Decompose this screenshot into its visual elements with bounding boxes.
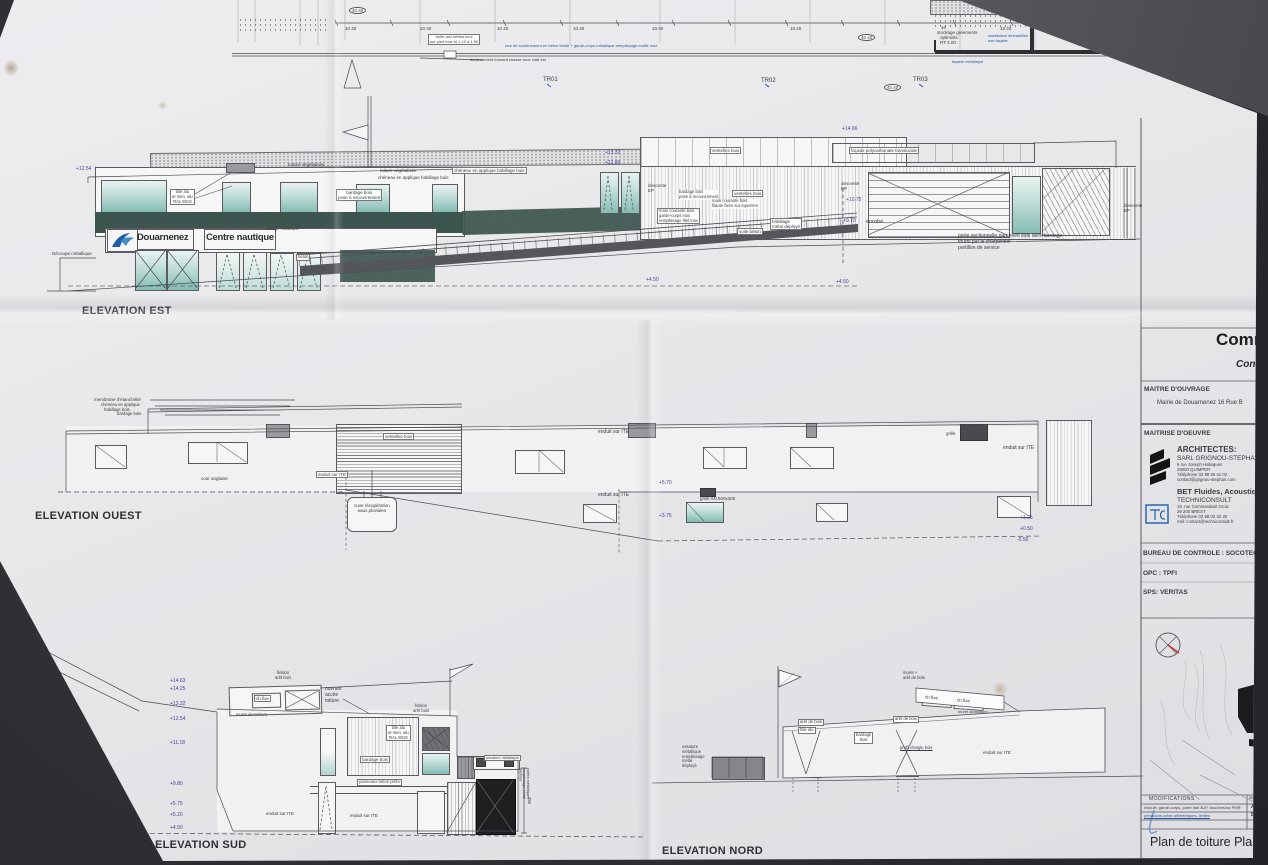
level-mark: +14.66 <box>842 127 857 132</box>
label-stockage: RT 4.00 <box>940 40 956 45</box>
maitrise-oeuvre-label: MAITRISE D'OEUVRE <box>1144 430 1211 437</box>
level-mark: +5.75 <box>170 802 183 807</box>
label-tole-alu: tôle aluet men. aluRAL 8019 <box>386 725 411 741</box>
site-building-footprint <box>1238 681 1268 733</box>
label-enduit-ite: enduit sur ITE <box>266 811 294 816</box>
label-porte-sectionnelle: porte sectionnelle parement bois idem ba… <box>958 234 1062 251</box>
window <box>422 753 450 775</box>
modification-indice: B <box>1251 813 1255 819</box>
dim-value: 10.40 <box>790 26 801 31</box>
dark-door <box>476 779 516 835</box>
photo-of-architectural-drawing: TR01 TR02 TR03 10.40 10.40 10.40 10.40 1… <box>0 0 1268 865</box>
label-enrobe: enrobé <box>866 219 883 225</box>
level-mark: +9.70 <box>843 219 856 224</box>
narrow-door <box>243 252 267 291</box>
label-muret-aret: muret +arêt de bois <box>903 671 925 681</box>
label-mur-soutenement: mur de soutènement en béton teinté + gar… <box>505 44 657 49</box>
label-aret-bois: arêt de bois <box>893 716 919 723</box>
level-mark: +1.25 <box>1020 516 1033 521</box>
label-cuve: cuve récupérationeaux pluviales <box>354 503 390 513</box>
door <box>791 730 822 778</box>
label-bardage-bois: bardage bois <box>117 412 141 417</box>
paper-stain <box>4 58 18 78</box>
level-mark: +4.50 <box>170 826 183 831</box>
level-mark: +5.70 <box>659 481 672 486</box>
window <box>703 447 747 469</box>
window <box>432 184 458 213</box>
label-enduit-ite: enduit sur ITE <box>983 750 1011 755</box>
window <box>515 450 565 474</box>
label-chassis-fixe: ch.fixe <box>254 695 271 702</box>
level-mark: -0.50 <box>1017 538 1028 543</box>
maitre-ouvrage-value: Mairie de Douarnenez 16 Rue B <box>1157 400 1243 407</box>
dim-bubble: 40.40 <box>858 34 875 41</box>
label-enduit-ite: enduit sur ITE <box>316 471 348 478</box>
window <box>101 180 167 213</box>
label-cour-anglaise: cour anglaise <box>201 476 228 481</box>
section-marker: TR03 <box>913 77 928 84</box>
label-beton: béton <box>296 254 310 261</box>
techniconsult-logo-icon <box>1146 505 1168 523</box>
level-mark: +13.32 <box>170 702 185 707</box>
glazed-door <box>135 250 167 291</box>
label-descente-ep: descenteEP <box>1124 203 1142 213</box>
label-cheneau: chéneau en applique habillage bois <box>452 167 527 174</box>
bet-label: BET Fluides, Acoustique <box>1177 488 1265 497</box>
label-grille-an: grille AN 600x300 <box>700 496 735 501</box>
elevation-est-title: ELEVATION EST <box>82 305 172 317</box>
label-enduit-ite: enduit sur ITE <box>1003 446 1034 452</box>
window-lower <box>816 503 848 522</box>
label-enduit-ite: enduit sur ITE <box>350 813 378 818</box>
label-habillage-metal: habillagemétal déployé <box>770 218 802 230</box>
label-installation: axe façade <box>988 39 1008 44</box>
label-cheneau: chéneau en applique habillage bois <box>378 175 449 180</box>
label-facade-metallique: façade métallique <box>952 60 983 65</box>
label-bardage-bois: bardage boispose à recouvrement <box>336 189 382 201</box>
sectional-door <box>868 172 1010 238</box>
narrow-window <box>318 782 336 834</box>
x-panel <box>285 690 321 711</box>
project-subtitle: Cons <box>1236 359 1261 371</box>
dim-bubble: 40.40 <box>884 84 901 91</box>
window-lower <box>583 504 617 523</box>
label-chassis-fixe: ch.fixe <box>957 698 970 704</box>
label-muret-aluminium: muret aluminium <box>236 713 267 718</box>
level-mark: +12.89 <box>605 161 620 166</box>
ouest-annex <box>1046 420 1092 506</box>
gate-panel <box>1042 168 1110 236</box>
label-ventelles: ventelles bois <box>732 190 763 197</box>
label-lettrage: lettrage métallique <box>266 227 299 232</box>
level-mark: +12.54 <box>76 167 91 172</box>
label-finition-aret: finitionarêt bois <box>413 704 429 714</box>
architectes-label: ARCHITECTES: <box>1177 445 1237 454</box>
service-door <box>1012 176 1041 234</box>
narrow-door <box>270 253 294 291</box>
wood-siding <box>822 722 900 776</box>
dim-value: 10.40 <box>497 26 508 31</box>
label-bardage-bois: bardagebois <box>854 732 873 744</box>
label-garde-corps: main courante boisgarde-corps inoxrempli… <box>657 208 700 224</box>
label-toiture-vegetalisee: toiture végétalisée <box>380 168 417 173</box>
bureau-controle: BUREAU DE CONTROLE : SOCOTEC <box>1143 550 1258 557</box>
tall-window <box>621 172 640 214</box>
maitre-ouvrage-label: MAITRE D'OUVRAGE <box>1144 386 1210 393</box>
modification-row: précisions cotes altimétriques, limites <box>1144 814 1210 819</box>
paper-fold <box>636 320 662 865</box>
section-marker: TR02 <box>761 78 776 85</box>
dim-value: 10.40 <box>652 26 663 31</box>
clerestory-dark <box>422 727 450 751</box>
architect-logo-icon <box>1150 449 1170 485</box>
paper-fold <box>0 294 1268 326</box>
drawing-sheet: TR01 TR02 TR03 10.40 10.40 10.40 10.40 1… <box>0 0 1268 865</box>
sign-city: Douarnenez <box>137 233 188 244</box>
elevation-ouest-title: ELEVATION OUEST <box>35 510 142 522</box>
grille-vent <box>960 424 988 441</box>
modification-row: édicule, garde-corps, porte hall 3UP, do… <box>1144 806 1241 811</box>
level-mark: +4.50 <box>646 278 659 283</box>
level-mark: +9.80 <box>170 782 183 787</box>
label-ventelles: ventelles bois <box>710 147 741 154</box>
window <box>95 445 127 469</box>
label-panneaux-beton: panneaux béton préfa <box>357 779 402 786</box>
level-mark: +12.54 <box>170 717 185 722</box>
label-polycarbonate: façade polycarbonate translucide <box>849 147 919 154</box>
paper-stain <box>158 101 167 110</box>
dim-value: 10.40 <box>573 26 584 31</box>
label-enduit-ite: enduit sur ITE <box>598 493 629 499</box>
modifications-header: MODIFICATIONS <box>1149 797 1195 803</box>
tall-window <box>600 172 619 214</box>
level-mark: +14.25 <box>170 687 185 692</box>
roof-vent <box>266 424 290 438</box>
dim-value: 10.40 <box>1000 26 1011 31</box>
window <box>790 447 834 469</box>
window-lower <box>686 502 724 523</box>
stair-zone <box>447 782 478 835</box>
label-chasse-roue: soutènement formant chasse roue côté est <box>470 58 546 63</box>
label-tole-alu: tôle aluet men. aluRAL 8019 <box>170 189 195 205</box>
label-boite-aux-lettres: boîte aux lettres inoxsur pied inox ht 1… <box>428 34 480 45</box>
narrow-door <box>216 252 240 291</box>
indice-header: indice <box>1249 796 1260 801</box>
project-title: Comm <box>1216 330 1268 350</box>
sign-centre: Centre nautique <box>206 233 274 244</box>
level-mark: +4.50 <box>836 280 849 285</box>
bet-email: mél: contact@techniconsult.fr <box>1177 520 1233 525</box>
roof-vent <box>226 163 255 173</box>
architecte-email: contact@grignou-stephan.com <box>1177 478 1236 483</box>
section-marker: TR01 <box>543 77 558 84</box>
level-mark: +0.50 <box>1020 527 1033 532</box>
narrow-window <box>320 728 336 776</box>
dim-bubble: 40.40 <box>349 7 366 14</box>
sps: SPS: VERITAS <box>1143 589 1188 596</box>
label-aret-bois: arêt de bois <box>798 719 824 726</box>
dim-value: 10.40 <box>420 26 431 31</box>
glazed-door <box>167 250 199 291</box>
level-mark: +14.63 <box>170 679 185 684</box>
label-ossature: ossature métallique <box>484 755 521 761</box>
label-main-courante: main courante boisfilante fixée sur éque… <box>712 199 758 209</box>
label-descente-ep: descenteEP <box>648 183 666 193</box>
dim-value: 10.40 <box>345 26 356 31</box>
label-decoupe: Découpe métallique <box>52 251 92 256</box>
level-mark: +11.18 <box>170 741 185 746</box>
label-ventelles: ventelles bois <box>383 433 414 440</box>
label-finition-aret: finitionarêt bois <box>275 671 291 681</box>
modification-indice: A <box>1251 805 1255 811</box>
paper-stain <box>991 682 1009 697</box>
label-voile-beton: voile béton <box>737 228 763 235</box>
label-ouvrant-toiture: ouvrantaccèstoiture <box>325 687 342 704</box>
level-mark: +13.32 <box>605 151 620 156</box>
label-enduit-ite: enduit sur ITE <box>598 430 629 436</box>
label-bardage-bois: bardage bois <box>360 756 390 763</box>
door <box>417 791 445 834</box>
elevation-sud-title: ELEVATION SUD <box>155 839 247 851</box>
label-profil-angle: profil d'angle bois <box>900 746 932 751</box>
label-tole-alu: tôle alu <box>798 727 816 734</box>
label-chassis-fixe: ch.fixe <box>925 695 938 701</box>
label-muret-aluminium: muret aluminium <box>958 710 988 715</box>
level-mark: +10.75 <box>846 198 861 203</box>
label-toiture-vegetalisee: toiture végétalisée <box>288 162 325 167</box>
window <box>222 182 251 213</box>
metal-fence <box>712 757 765 780</box>
door <box>896 729 919 777</box>
window <box>280 182 318 213</box>
drawing-title: Plan de toiture Plans de <box>1150 835 1268 849</box>
label-descente-ep: descenteEP <box>841 181 859 191</box>
label-ossature-metal: ossaturemétalliqueremplissagemétaldéploy… <box>682 745 705 769</box>
dim-value: 350 <box>526 797 531 804</box>
elevation-nord-title: ELEVATION NORD <box>662 845 763 857</box>
roof-vent <box>806 423 817 438</box>
fence <box>340 250 435 282</box>
label-grille: grille <box>946 431 956 436</box>
north-compass-icon <box>1156 633 1180 657</box>
level-mark: +5.20 <box>170 813 183 818</box>
window <box>188 442 248 464</box>
opc: OPC : TPFI <box>1143 570 1177 577</box>
level-mark: +3.75 <box>659 514 672 519</box>
roof-vent <box>628 423 656 438</box>
